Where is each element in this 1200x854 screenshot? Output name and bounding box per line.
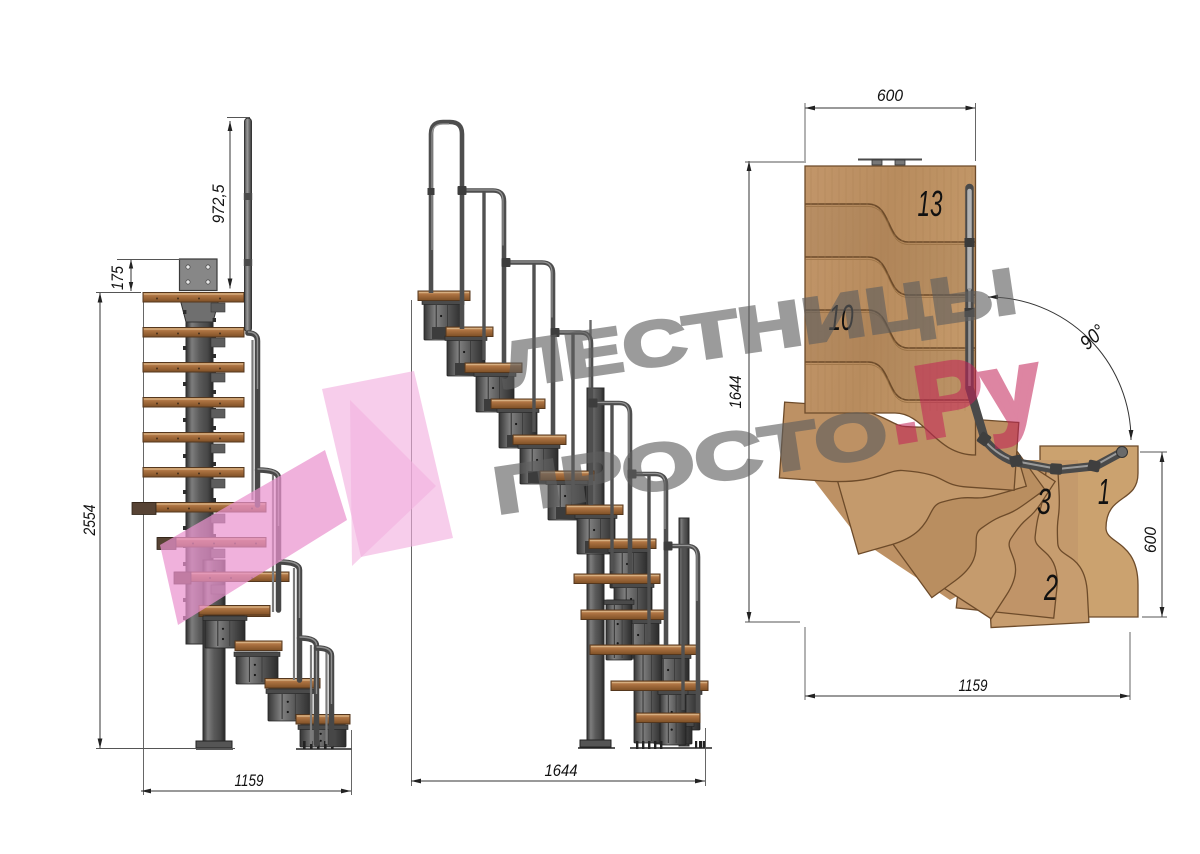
svg-text:2: 2 <box>1043 567 1058 608</box>
svg-text:600: 600 <box>1141 527 1160 553</box>
svg-text:3: 3 <box>1037 481 1051 522</box>
svg-text:600: 600 <box>877 86 903 105</box>
svg-text:2554: 2554 <box>80 505 99 537</box>
svg-text:1: 1 <box>1098 471 1110 512</box>
svg-text:1644: 1644 <box>726 376 745 409</box>
svg-text:972,5: 972,5 <box>209 184 228 223</box>
svg-text:13: 13 <box>918 183 943 224</box>
svg-text:1159: 1159 <box>235 771 264 790</box>
svg-text:175: 175 <box>108 266 127 290</box>
svg-text:1159: 1159 <box>959 676 988 695</box>
svg-text:1644: 1644 <box>545 761 578 780</box>
